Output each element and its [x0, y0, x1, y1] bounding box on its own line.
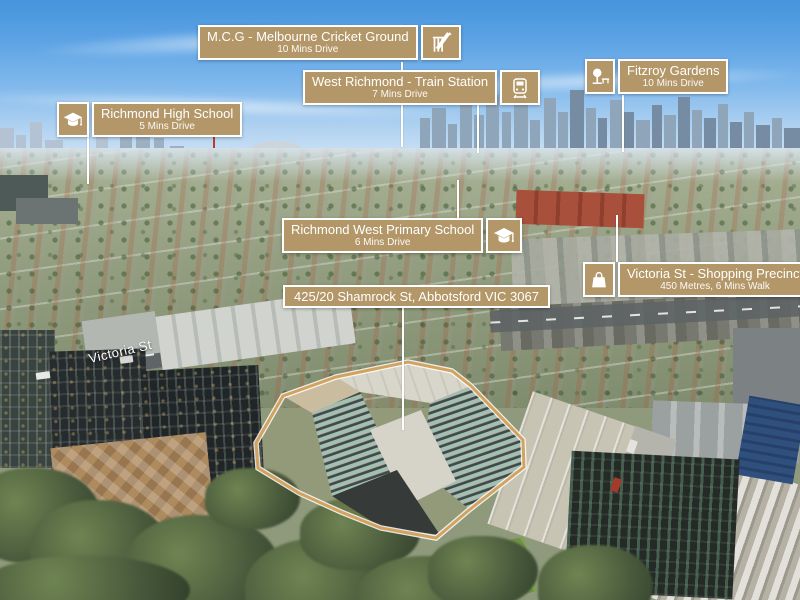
- callout-text: Fitzroy Gardens 10 Mins Drive: [618, 59, 728, 94]
- train-icon: [500, 70, 540, 105]
- leader-line-shopping: [616, 215, 618, 262]
- callout-subtitle: 450 Metres, 6 Mins Walk: [627, 281, 800, 293]
- property-address: 425/20 Shamrock St, Abbotsford VIC 3067: [294, 289, 539, 304]
- callout-text: West Richmond - Train Station 7 Mins Dri…: [303, 70, 497, 105]
- callout-title: M.C.G - Melbourne Cricket Ground: [207, 29, 409, 44]
- callout-train-station: West Richmond - Train Station 7 Mins Dri…: [303, 70, 540, 105]
- cricket-bat-and-stumps-icon: [421, 25, 461, 60]
- callout-subtitle: 6 Mins Drive: [291, 237, 474, 249]
- callout-title: Fitzroy Gardens: [627, 63, 719, 78]
- callout-title: Richmond High School: [101, 106, 233, 121]
- park-tree-icon: [585, 59, 615, 94]
- address-text-box: 425/20 Shamrock St, Abbotsford VIC 3067: [283, 285, 550, 308]
- callout-text: M.C.G - Melbourne Cricket Ground 10 Mins…: [198, 25, 418, 60]
- callout-mcg: M.C.G - Melbourne Cricket Ground 10 Mins…: [198, 25, 461, 60]
- callout-text: Richmond High School 5 Mins Drive: [92, 102, 242, 137]
- property-outline-glow: [256, 362, 524, 538]
- address-banner: 425/20 Shamrock St, Abbotsford VIC 3067: [283, 285, 550, 308]
- leader-line-address: [402, 306, 404, 430]
- callout-primary-school: Richmond West Primary School 6 Mins Driv…: [282, 218, 522, 253]
- callout-subtitle: 7 Mins Drive: [312, 89, 488, 101]
- callout-text: Richmond West Primary School 6 Mins Driv…: [282, 218, 483, 253]
- leader-line-train: [477, 105, 479, 153]
- callout-subtitle: 5 Mins Drive: [101, 121, 233, 133]
- callout-title: Victoria St - Shopping Precinct: [627, 266, 800, 281]
- graduation-cap-icon: [57, 102, 89, 137]
- leader-line-primary-school: [457, 180, 459, 218]
- callout-title: West Richmond - Train Station: [312, 74, 488, 89]
- callout-subtitle: 10 Mins Drive: [207, 44, 409, 56]
- shopping-bag-icon: [583, 262, 615, 297]
- leader-line-high-school: [87, 135, 89, 184]
- graduation-cap-icon: [486, 218, 522, 253]
- callout-text: Victoria St - Shopping Precinct 450 Metr…: [618, 262, 800, 297]
- callout-shopping-precinct: Victoria St - Shopping Precinct 450 Metr…: [583, 262, 800, 297]
- aerial-photo-scene: Victoria St: [0, 0, 800, 600]
- callout-high-school: Richmond High School 5 Mins Drive: [57, 102, 242, 137]
- callout-subtitle: 10 Mins Drive: [627, 78, 719, 90]
- leader-line-fitzroy: [622, 95, 624, 152]
- callout-title: Richmond West Primary School: [291, 222, 474, 237]
- callout-fitzroy-gardens: Fitzroy Gardens 10 Mins Drive: [585, 59, 728, 94]
